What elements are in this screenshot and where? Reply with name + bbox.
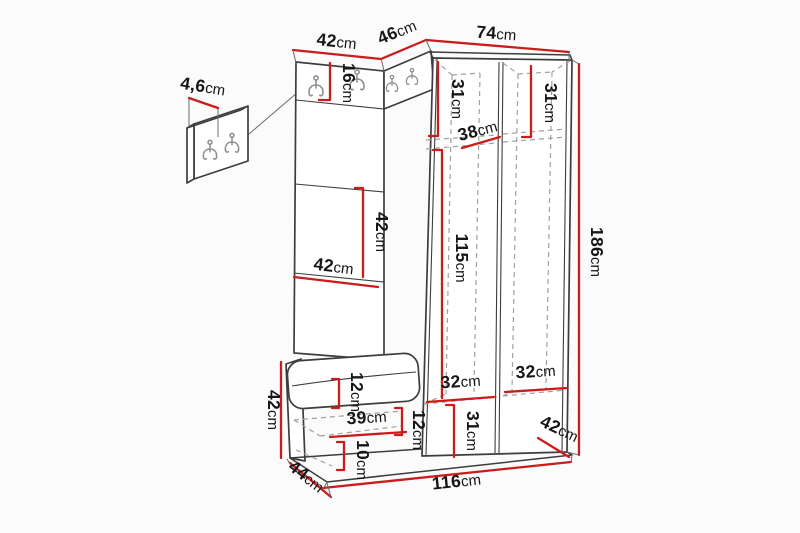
wall-hook-panel	[187, 86, 305, 183]
dimension-line-base-height	[337, 442, 344, 470]
dim-label-total-height: 186cm	[587, 227, 607, 277]
dim-label-base-height: 10cm	[353, 440, 373, 480]
dim-label-interior-height: 115cm	[452, 233, 472, 282]
dim-label-right-width: 74cm	[476, 22, 517, 45]
dim-label-bench-interior-width: 39cm	[346, 406, 387, 429]
furniture-dimension-drawing: 4,6cm 42cm 46cm 74cm 16cm 31cm 31cm 38cm…	[0, 0, 800, 533]
dim-label-right-col-top-height: 31cm	[541, 83, 561, 123]
dim-label-right-col-width: 32cm	[515, 360, 556, 383]
diagram-canvas: 4,6cm 42cm 46cm 74cm 16cm 31cm 31cm 38cm…	[0, 0, 800, 533]
dim-label-bench-height: 42cm	[264, 390, 284, 430]
dim-label-cushion-thickness: 12cm	[347, 372, 367, 412]
dim-label-total-width: 116cm	[431, 469, 482, 494]
dim-label-left-col-top-height: 31cm	[448, 79, 468, 119]
dim-label-hook-strip-height: 16cm	[339, 63, 359, 103]
corner-section	[384, 51, 434, 109]
dimension-line-panel-thickness	[189, 98, 218, 108]
dim-label-corner-width: 46cm	[374, 15, 419, 49]
dim-label-left-col-width: 32cm	[440, 370, 481, 393]
coat-rack-wall-section	[294, 62, 384, 360]
dim-label-gap-height: 12cm	[409, 410, 429, 450]
dim-label-panel-thickness: 4,6cm	[179, 73, 227, 100]
dimension-line-top-left-width	[293, 50, 381, 59]
dim-label-top-left-width: 42cm	[316, 29, 358, 53]
dim-label-bottom-section-height: 31cm	[463, 411, 483, 451]
dim-label-mirror-height: 42cm	[372, 212, 392, 252]
